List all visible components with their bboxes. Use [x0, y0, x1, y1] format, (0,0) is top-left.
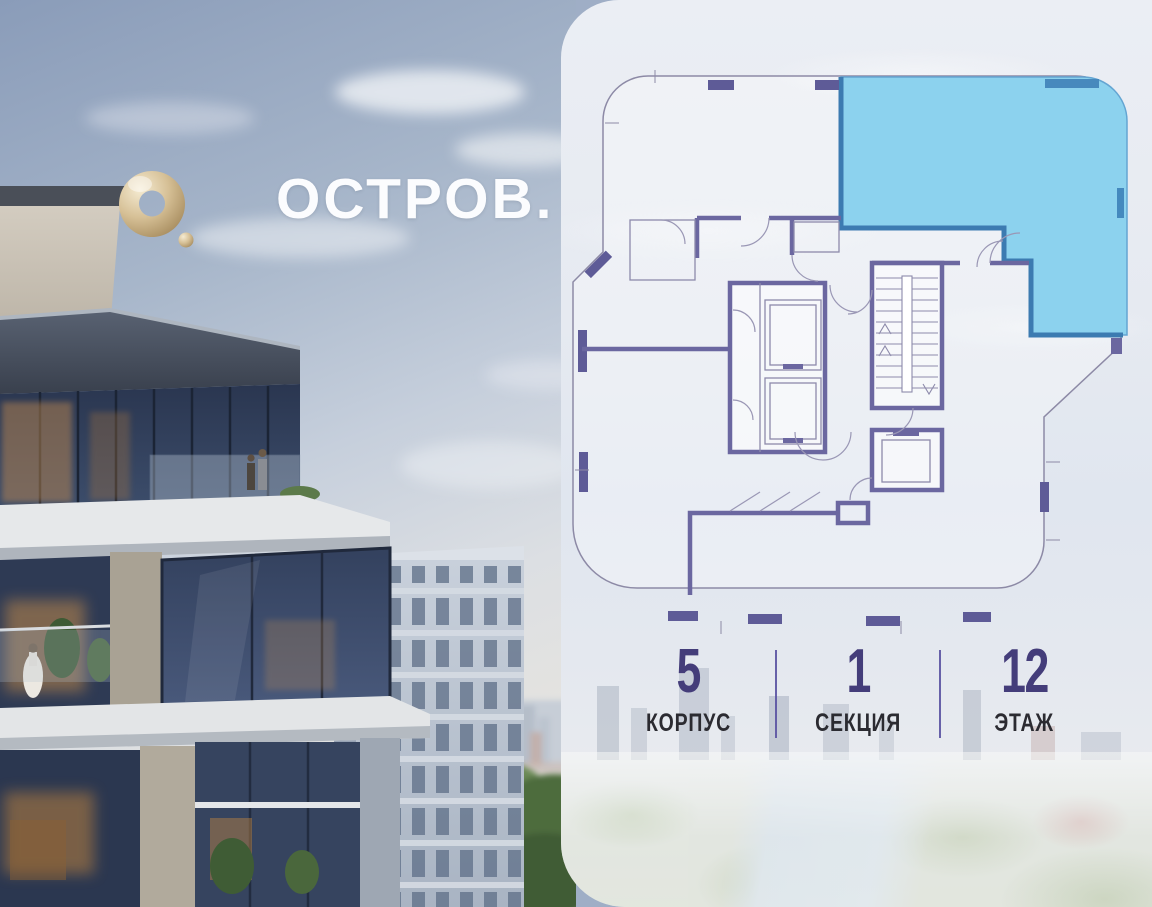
building-photo-art	[0, 0, 576, 907]
building-label: КОРПУС	[646, 709, 731, 738]
page: ОСТРОВ.	[0, 0, 1152, 907]
floor-plan-panel: 5 КОРПУС 1 СЕКЦИЯ 12 ЭТАЖ	[561, 0, 1152, 907]
floor-info: 12 ЭТАЖ	[944, 643, 1104, 738]
floor-plan	[561, 0, 1152, 650]
section-number: 1	[846, 643, 869, 701]
building-info: 5 КОРПУС	[608, 643, 768, 738]
floor-label: ЭТАЖ	[994, 709, 1053, 738]
section-info: 1 СЕКЦИЯ	[778, 643, 938, 738]
brand-logo-text: ОСТРОВ.	[276, 166, 555, 232]
building-photo	[0, 0, 576, 907]
building-number: 5	[676, 643, 699, 701]
section-label: СЕКЦИЯ	[815, 709, 901, 738]
brand-logo: ОСТРОВ.	[112, 158, 532, 258]
divider	[939, 650, 941, 738]
panel-park-view	[561, 752, 1152, 907]
divider	[775, 650, 777, 738]
floor-number: 12	[1001, 643, 1048, 701]
